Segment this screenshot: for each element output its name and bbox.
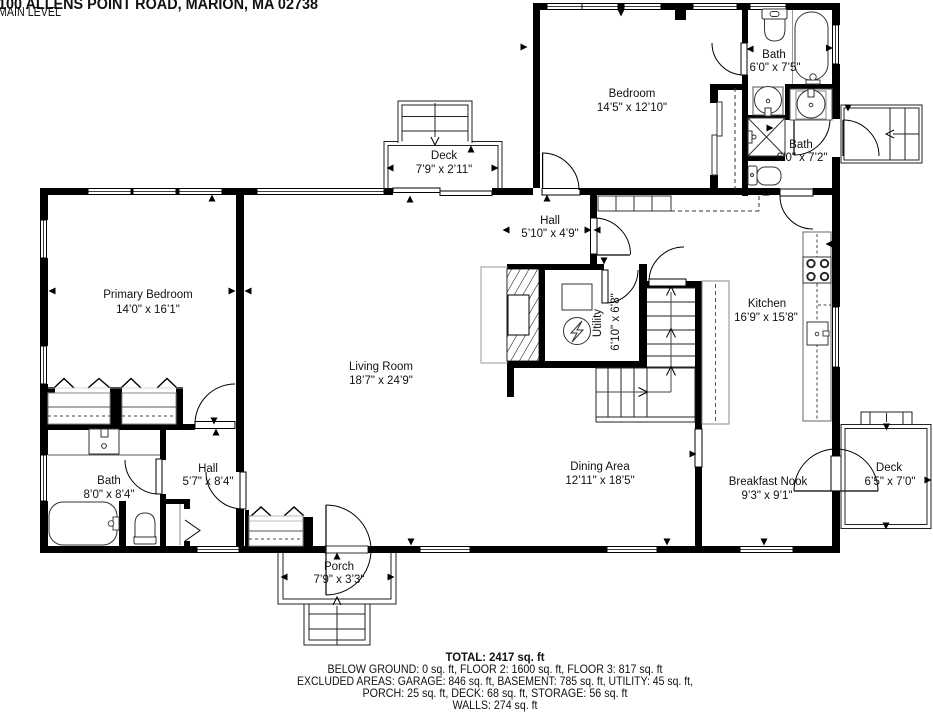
svg-text:Primary Bedroom: Primary Bedroom (103, 289, 192, 301)
svg-text:Porch: Porch (324, 561, 354, 573)
svg-text:Bath: Bath (762, 49, 786, 61)
svg-text:Bath: Bath (789, 139, 813, 151)
svg-text:MAIN LEVEL: MAIN LEVEL (0, 5, 61, 19)
svg-text:Deck: Deck (431, 150, 457, 162)
svg-text:6’5" x 7’0": 6’5" x 7’0" (865, 476, 916, 488)
svg-text:7’9" x 3’3": 7’9" x 3’3" (314, 574, 365, 586)
svg-text:Dining Area: Dining Area (570, 461, 630, 473)
svg-text:14’5" x 12’10": 14’5" x 12’10" (597, 102, 667, 114)
svg-text:14’0" x 16’1": 14’0" x 16’1" (116, 304, 180, 316)
svg-text:16’9" x 15’8": 16’9" x 15’8" (734, 312, 798, 324)
svg-text:Bath: Bath (97, 475, 121, 487)
svg-text:6’10" x 6’8": 6’10" x 6’8" (610, 293, 622, 350)
svg-text:5’10" x 4’9": 5’10" x 4’9" (521, 228, 578, 240)
svg-text:18’7" x 24’9": 18’7" x 24’9" (349, 375, 413, 387)
svg-text:Living Room: Living Room (349, 361, 413, 373)
svg-text:5’7" x 8’4": 5’7" x 8’4" (183, 476, 234, 488)
svg-text:6’0" x 7’2": 6’0" x 7’2" (777, 152, 828, 164)
svg-text:6’0" x 7’5": 6’0" x 7’5" (750, 62, 801, 74)
svg-text:Kitchen: Kitchen (748, 298, 786, 310)
svg-text:Breakfast Nook: Breakfast Nook (729, 476, 808, 488)
svg-text:Utility: Utility (592, 309, 604, 337)
svg-text:Deck: Deck (876, 462, 902, 474)
svg-text:9’3" x 9’1": 9’3" x 9’1" (742, 490, 793, 502)
svg-text:Bedroom: Bedroom (609, 88, 656, 100)
svg-text:8’0" x 8’4": 8’0" x 8’4" (84, 489, 135, 501)
svg-text:Hall: Hall (540, 215, 560, 227)
svg-text:WALLS: 274 sq. ft: WALLS: 274 sq. ft (453, 698, 539, 712)
svg-text:Hall: Hall (198, 463, 218, 475)
svg-text:7’9" x 2’11": 7’9" x 2’11" (416, 164, 473, 176)
svg-text:12’11" x 18’5": 12’11" x 18’5" (565, 475, 634, 487)
